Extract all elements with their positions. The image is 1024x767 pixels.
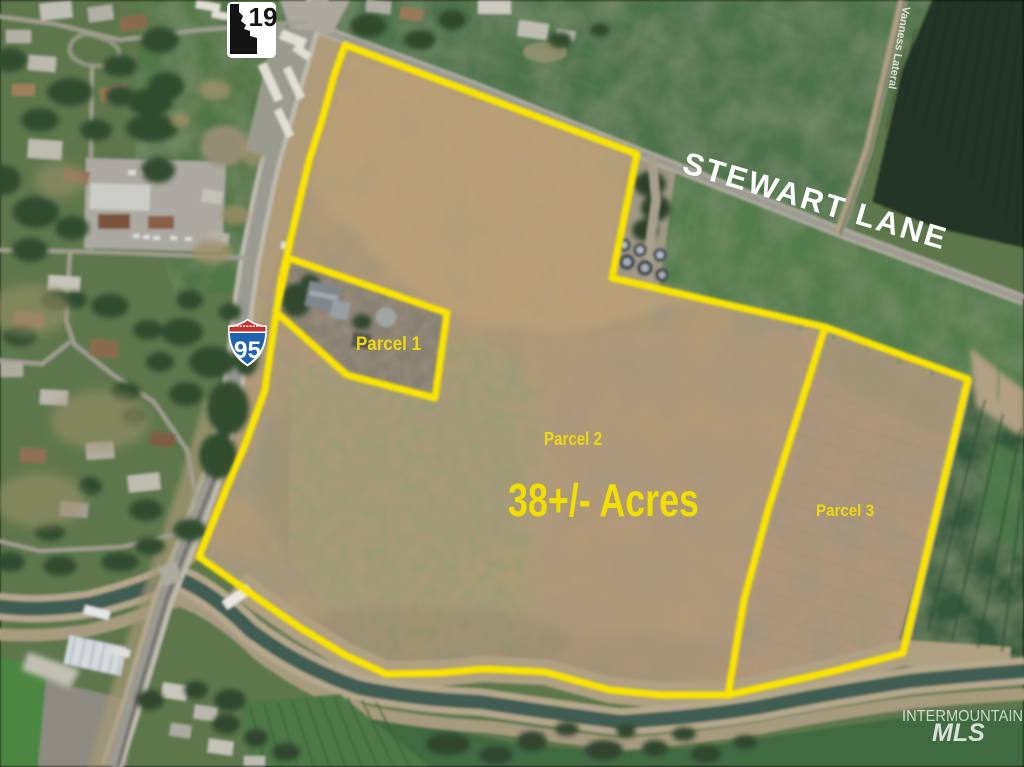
svg-text:Parcel 3: Parcel 3 <box>816 501 874 520</box>
svg-text:Parcel 1: Parcel 1 <box>356 334 421 355</box>
svg-text:19: 19 <box>249 2 278 32</box>
svg-text:Parcel 2: Parcel 2 <box>544 429 602 449</box>
svg-text:MLS: MLS <box>932 719 985 747</box>
svg-text:38+/- Acres: 38+/- Acres <box>508 474 699 526</box>
svg-text:95: 95 <box>234 337 261 364</box>
